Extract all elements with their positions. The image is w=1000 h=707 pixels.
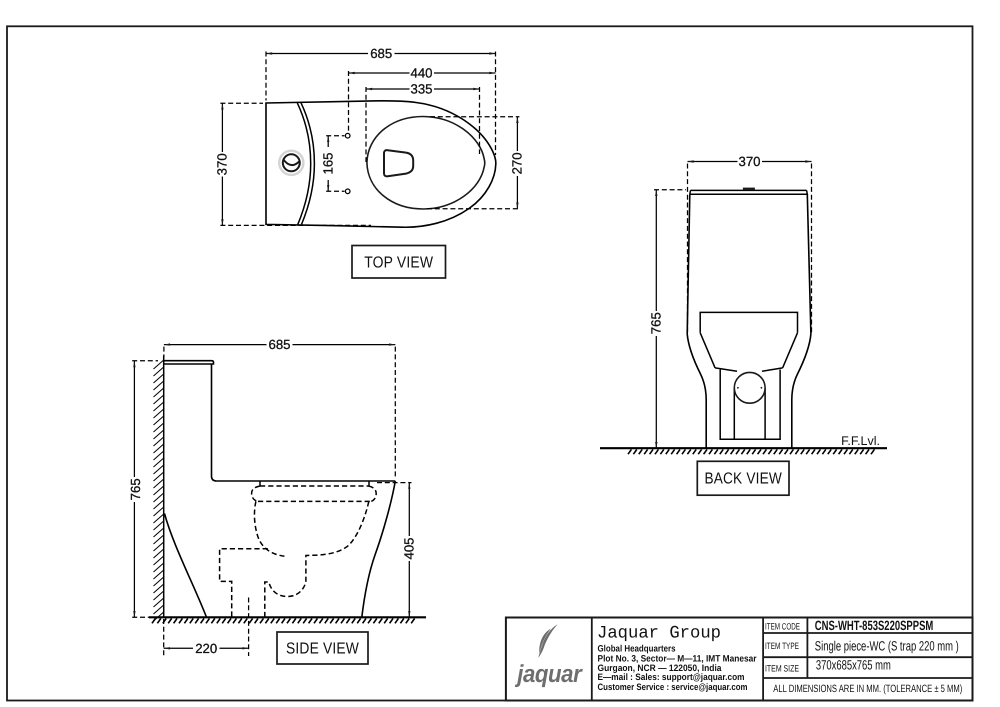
svg-text:SIDE VIEW: SIDE VIEW: [286, 641, 360, 658]
svg-text:Single piece-WC (S trap 220 mm: Single piece-WC (S trap 220 mm ): [815, 639, 959, 654]
svg-text:TOP VIEW: TOP VIEW: [364, 255, 434, 272]
svg-text:ITEM TYPE: ITEM TYPE: [765, 641, 799, 651]
svg-text:370: 370: [738, 154, 760, 169]
svg-text:Plot No. 3, Sector— M—11, IMT: Plot No. 3, Sector— M—11, IMT Manesar: [598, 653, 757, 663]
svg-text:jaquar: jaquar: [515, 661, 583, 688]
svg-text:E—mail : Sales: support@jaquar: E—mail : Sales: support@jaquar.com: [598, 672, 745, 682]
svg-text:CNS-WHT-853S220SPPSM: CNS-WHT-853S220SPPSM: [815, 618, 934, 633]
svg-text:440: 440: [410, 66, 432, 81]
svg-text:370: 370: [215, 153, 230, 175]
svg-text:Jaquar Group: Jaquar Group: [597, 624, 721, 644]
svg-text:370x685x765 mm: 370x685x765 mm: [816, 658, 891, 673]
svg-text:Global Headquarters: Global Headquarters: [598, 644, 676, 654]
svg-text:685: 685: [370, 46, 392, 61]
svg-text:335: 335: [410, 82, 432, 97]
svg-text:270: 270: [510, 152, 525, 174]
svg-text:165: 165: [320, 152, 335, 174]
svg-text:685: 685: [268, 337, 290, 352]
svg-text:BACK VIEW: BACK VIEW: [704, 471, 782, 488]
svg-text:Customer Service : service@jaq: Customer Service : service@jaquar.com: [598, 682, 748, 692]
svg-text:ITEM SIZE: ITEM SIZE: [765, 664, 799, 674]
svg-text:405: 405: [402, 537, 417, 559]
svg-text:ITEM CODE: ITEM CODE: [765, 622, 800, 632]
svg-text:F.F.Lvl.: F.F.Lvl.: [841, 434, 880, 448]
svg-text:765: 765: [649, 312, 664, 334]
svg-text:ALL DIMENSIONS ARE IN MM. (TOL: ALL DIMENSIONS ARE IN MM. (TOLERANCE ± 5…: [773, 683, 962, 695]
svg-text:220: 220: [195, 641, 217, 656]
svg-text:765: 765: [128, 478, 143, 500]
